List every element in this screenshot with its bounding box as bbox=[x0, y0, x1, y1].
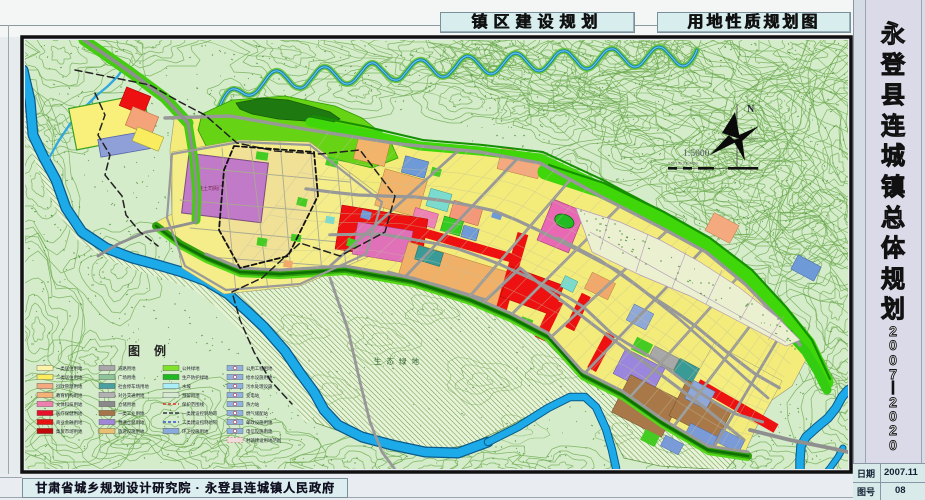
svg-text:对外交通用地: 对外交通用地 bbox=[118, 392, 145, 399]
svg-text:广场用地: 广场用地 bbox=[118, 374, 136, 381]
svg-text:环卫设施用地: 环卫设施用地 bbox=[182, 428, 209, 435]
svg-text:污水处理设施: 污水处理设施 bbox=[246, 383, 273, 390]
svg-text:一类建设控制地带: 一类建设控制地带 bbox=[182, 410, 218, 417]
svg-text:二类建设控制地带: 二类建设控制地带 bbox=[182, 419, 218, 426]
svg-text:N: N bbox=[747, 104, 755, 115]
svg-text:变电站: 变电站 bbox=[246, 392, 260, 399]
svg-text:仓储用地: 仓储用地 bbox=[118, 401, 136, 408]
svg-text:商业金融用地: 商业金融用地 bbox=[56, 419, 83, 426]
svg-text:道路用地: 道路用地 bbox=[118, 365, 136, 372]
svg-text:燃气储配站: 燃气储配站 bbox=[246, 410, 269, 417]
svg-text:旅游设施用地: 旅游设施用地 bbox=[118, 428, 145, 435]
svg-text:教育机构用地: 教育机构用地 bbox=[56, 392, 83, 399]
svg-text:公共绿地: 公共绿地 bbox=[182, 365, 200, 372]
svg-text:热力站: 热力站 bbox=[246, 401, 260, 408]
svg-text:给水设施用地: 给水设施用地 bbox=[246, 374, 273, 381]
svg-text:0 50 100 200 40: 0 50 100 200 400m bbox=[668, 162, 698, 166]
svg-text:公用工程用地: 公用工程用地 bbox=[246, 365, 273, 372]
svg-text:一类居住用地: 一类居住用地 bbox=[56, 365, 83, 372]
svg-text:水域: 水域 bbox=[182, 383, 191, 389]
svg-text:村镇建设用地范围: 村镇建设用地范围 bbox=[246, 437, 282, 444]
svg-text:1:5000: 1:5000 bbox=[683, 149, 710, 159]
svg-text:集贸市场用地: 集贸市场用地 bbox=[56, 428, 83, 435]
svg-text:一类工业用地: 一类工业用地 bbox=[118, 410, 145, 417]
svg-text:二类居住用地: 二类居住用地 bbox=[56, 374, 83, 381]
svg-text:保护范围线: 保护范围线 bbox=[182, 401, 205, 408]
svg-text:普通仓储用地: 普通仓储用地 bbox=[118, 419, 145, 426]
svg-text:图例: 图例 bbox=[128, 343, 180, 358]
svg-text:社会停车场用地: 社会停车场用地 bbox=[118, 383, 149, 390]
svg-text:生产防护绿地: 生产防护绿地 bbox=[182, 374, 209, 381]
svg-text:医疗保健用地: 医疗保健用地 bbox=[56, 410, 83, 417]
svg-text:生态绿地: 生态绿地 bbox=[374, 356, 424, 366]
svg-text:连土司衙门: 连土司衙门 bbox=[198, 185, 223, 192]
svg-text:文体科技用地: 文体科技用地 bbox=[56, 401, 83, 408]
svg-text:预留用地: 预留用地 bbox=[182, 392, 200, 399]
svg-text:邮政设施用地: 邮政设施用地 bbox=[246, 419, 273, 426]
svg-text:电信设施用地: 电信设施用地 bbox=[246, 428, 273, 435]
svg-text:行政管理用地: 行政管理用地 bbox=[56, 383, 83, 390]
